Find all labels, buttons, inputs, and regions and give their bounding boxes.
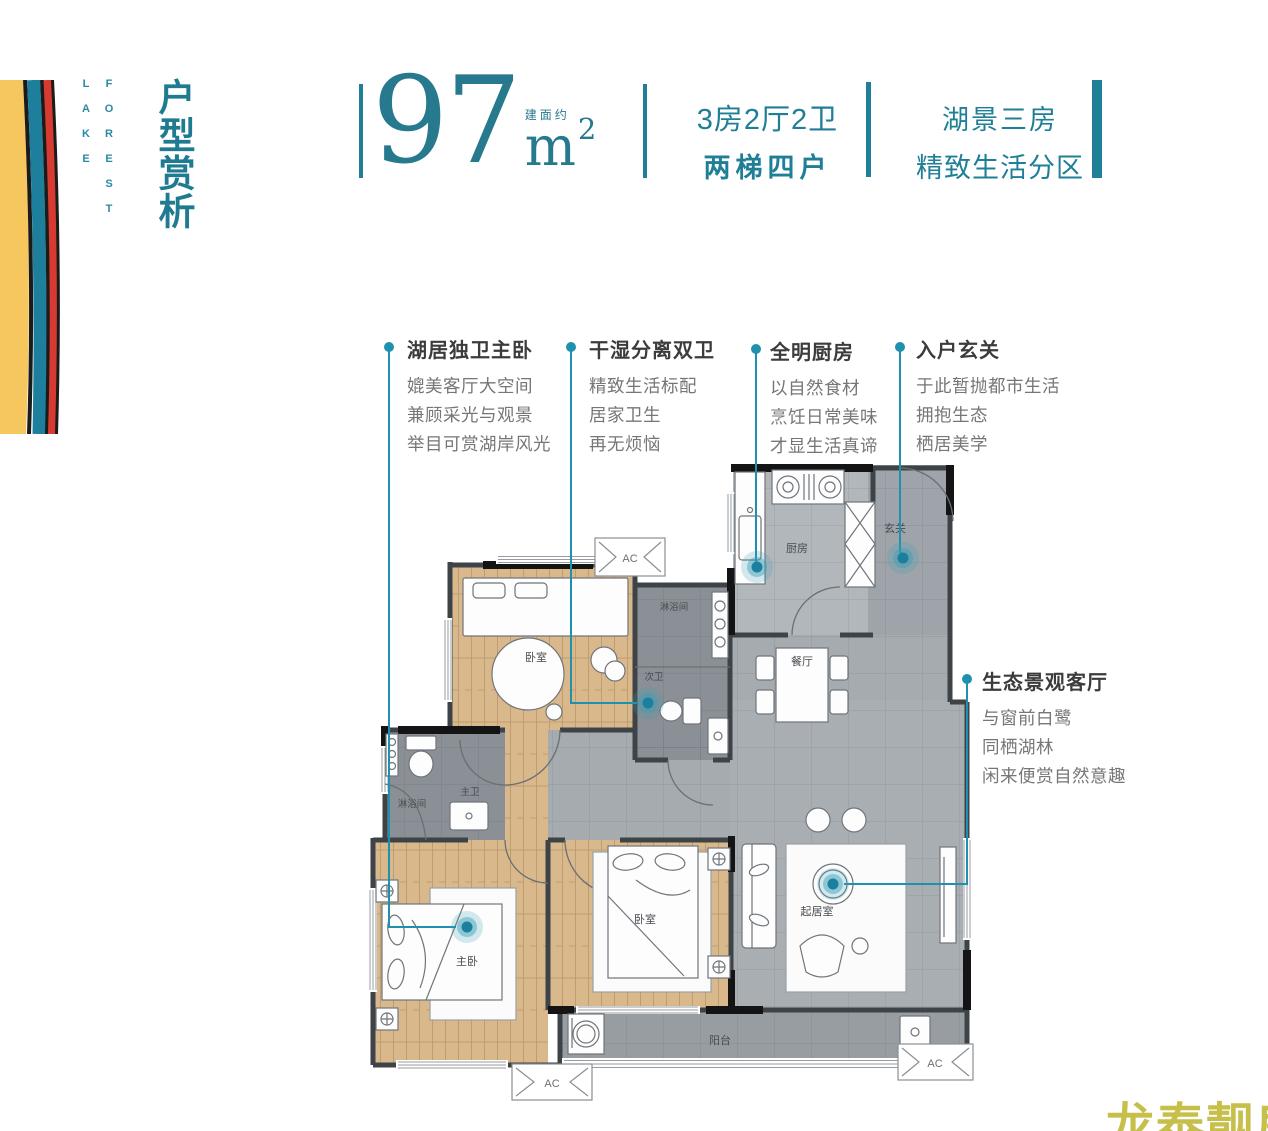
callout-title: 全明厨房	[770, 336, 878, 365]
flyer-page: LAKE FOREST 户型赏析 97 建面约 m 2 3房2厅2卫 两梯四户 …	[0, 0, 1268, 1131]
callout-entry: 入户玄关 于此暂抛都市生活 拥抱生态 栖居美学	[916, 334, 1060, 459]
page-title: 户型赏析	[146, 78, 200, 230]
callout-kitchen: 全明厨房 以自然食材 烹饪日常美味 才显生活真谛	[770, 336, 878, 461]
spec-block: 3房2厅2卫 两梯四户	[680, 96, 855, 185]
callout-master-bedroom: 湖居独卫主卧 媲美客厅大空间 兼顾采光与观景 举目可赏湖岸风光	[407, 334, 551, 459]
brand-word-lake: LAKE	[80, 78, 92, 178]
floor-plan: AC AC AC 厨房 玄关 餐厅 起居室 阳台 卧室 淋浴间 次卫 主卫 淋浴…	[368, 452, 978, 1107]
header-divider-4	[1092, 80, 1102, 178]
area-figure: 97 建面约 m 2	[372, 62, 596, 182]
watermark-logo: 龙泰靓房	[1106, 1086, 1268, 1131]
callout-title: 入户玄关	[916, 334, 1060, 363]
area-unit: m	[525, 123, 576, 172]
callout-title: 生态景观客厅	[982, 666, 1126, 695]
header-divider-2	[643, 84, 647, 178]
room-label-entry: 玄关	[884, 521, 906, 535]
room-label-dining: 餐厅	[791, 654, 813, 668]
tagline-2: 精致生活分区	[900, 146, 1100, 185]
room-label-kitchen: 厨房	[786, 542, 808, 555]
room-label-second-bath: 次卫	[644, 671, 664, 683]
brand-word-forest: FOREST	[103, 78, 115, 228]
room-label-living: 起居室	[801, 904, 834, 918]
ac-label-top: AC	[622, 553, 637, 565]
room-label-shower-2: 淋浴间	[398, 798, 427, 810]
tagline-block: 湖景三房 精致生活分区	[900, 98, 1100, 185]
callout-living-room: 生态景观客厅 与窗前白鹭 同栖湖林 闲来便赏自然意趣	[982, 666, 1126, 791]
spec-elevator: 两梯四户	[680, 146, 855, 185]
area-superscript: 2	[578, 112, 596, 146]
ac-label-bottom-right: AC	[927, 1058, 942, 1070]
room-label-bedroom-2: 卧室	[634, 912, 656, 926]
header-divider-3	[866, 82, 871, 177]
room-label-master-bath: 主卫	[460, 786, 480, 798]
ac-label-bottom-left: AC	[544, 1078, 559, 1090]
callout-title: 湖居独卫主卧	[407, 334, 551, 363]
header-divider-1	[359, 84, 363, 178]
callout-double-bath: 干湿分离双卫 精致生活标配 居家卫生 再无烦恼	[589, 334, 715, 459]
room-label-master-bedroom: 主卧	[456, 955, 478, 968]
room-label-balcony: 阳台	[709, 1033, 731, 1047]
area-value: 97	[372, 62, 519, 182]
brand-stripe-decoration	[0, 80, 64, 434]
room-label-bedroom-1: 卧室	[525, 650, 547, 664]
callout-title: 干湿分离双卫	[589, 334, 715, 363]
spec-layout: 3房2厅2卫	[680, 96, 855, 138]
tagline-1: 湖景三房	[900, 98, 1100, 137]
room-label-shower-1: 淋浴间	[660, 601, 689, 613]
